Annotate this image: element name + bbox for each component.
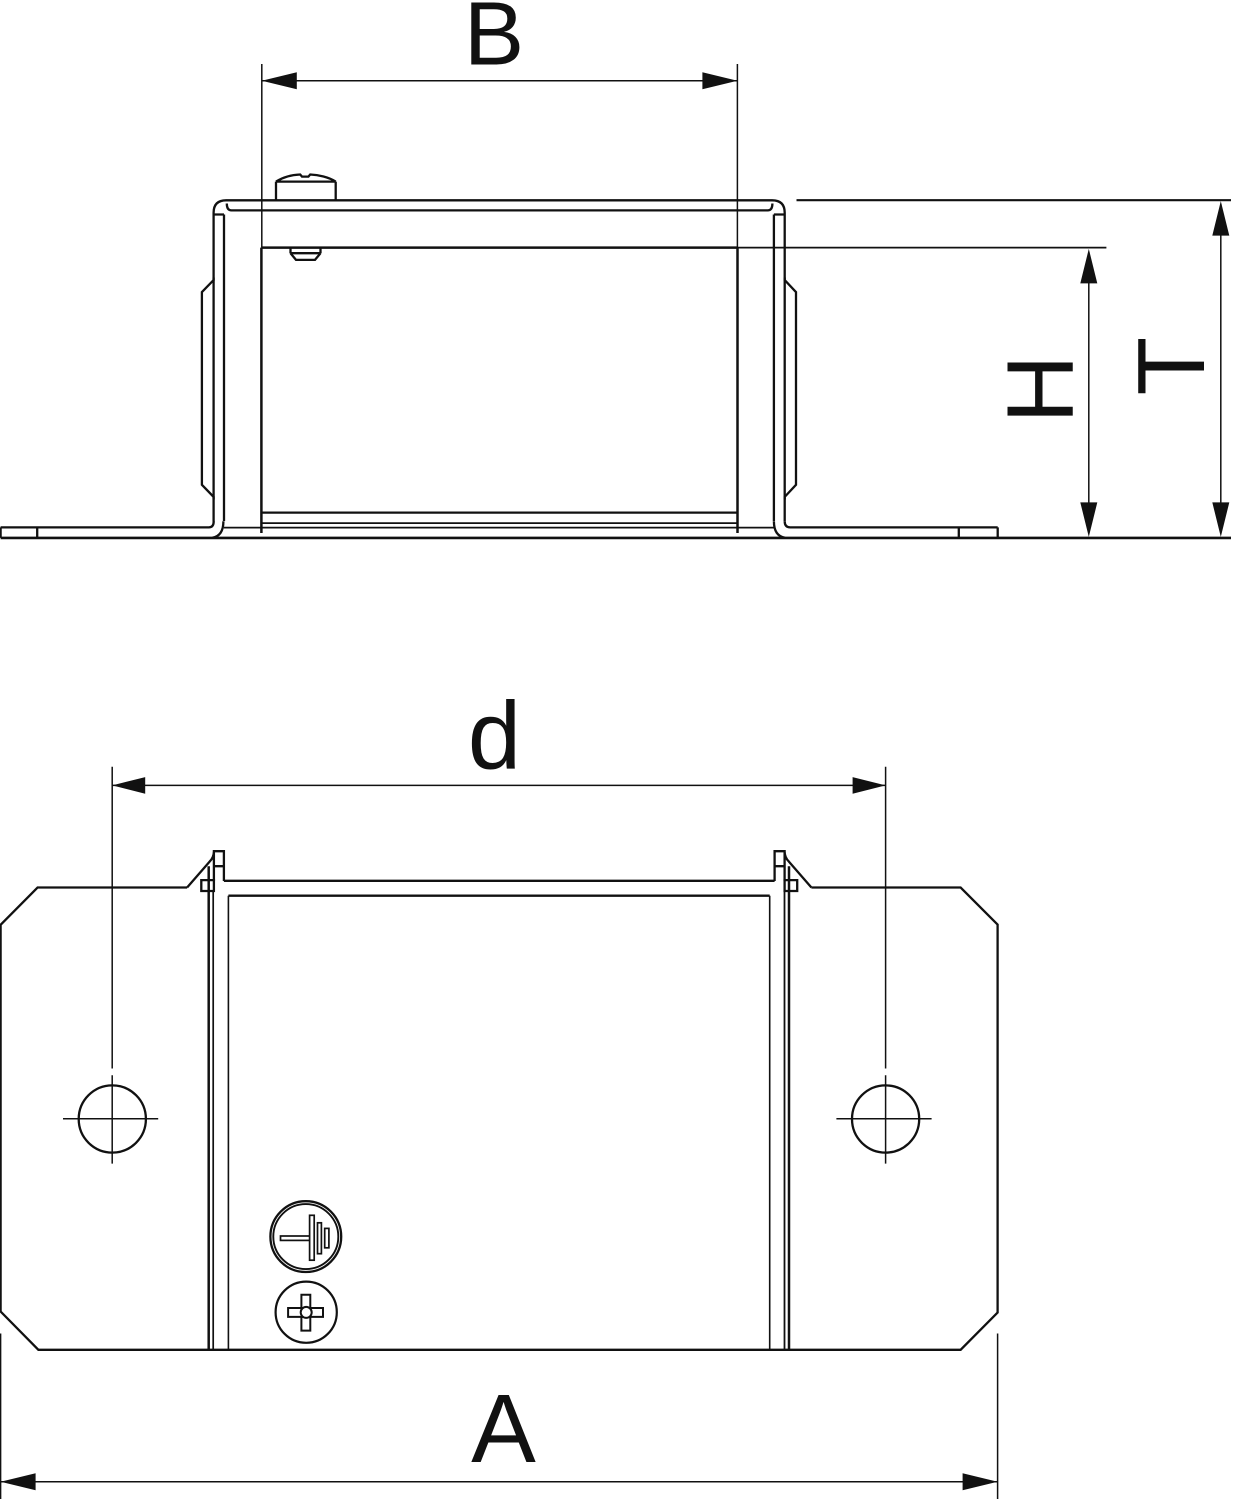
- svg-text:A: A: [471, 1374, 536, 1483]
- svg-text:T: T: [1118, 337, 1225, 396]
- svg-text:B: B: [464, 0, 524, 85]
- svg-text:d: d: [468, 684, 521, 790]
- svg-text:H: H: [987, 355, 1093, 424]
